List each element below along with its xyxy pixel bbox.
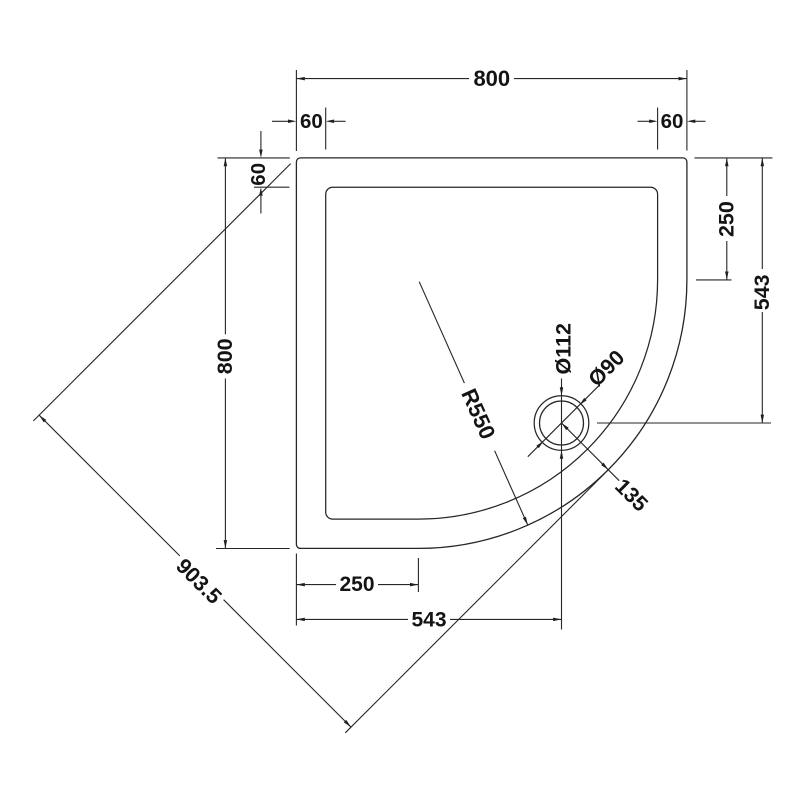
svg-text:800: 800 <box>473 66 510 91</box>
svg-text:60: 60 <box>661 110 684 133</box>
svg-text:250: 250 <box>715 201 739 237</box>
svg-text:250: 250 <box>339 573 374 596</box>
svg-text:543: 543 <box>750 274 774 310</box>
svg-text:543: 543 <box>411 608 446 631</box>
svg-text:R550: R550 <box>456 385 500 443</box>
svg-text:60: 60 <box>300 110 323 133</box>
svg-text:903.5: 903.5 <box>171 554 226 609</box>
svg-text:800: 800 <box>213 338 237 374</box>
svg-text:Ø90: Ø90 <box>584 346 630 392</box>
svg-text:60: 60 <box>247 163 270 186</box>
svg-text:135: 135 <box>610 474 652 516</box>
svg-text:Ø112: Ø112 <box>552 323 576 374</box>
